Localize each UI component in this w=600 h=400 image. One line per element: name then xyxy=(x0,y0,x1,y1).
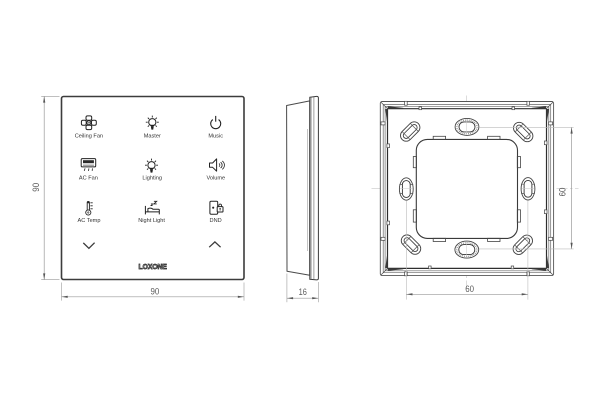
svg-text:AC Fan: AC Fan xyxy=(79,175,98,181)
svg-text:16: 16 xyxy=(299,287,307,297)
svg-text:60: 60 xyxy=(465,284,474,294)
svg-text:LOXONE: LOXONE xyxy=(139,262,168,271)
svg-text:Volume: Volume xyxy=(206,175,225,181)
svg-text:90: 90 xyxy=(151,286,160,296)
svg-text:DND: DND xyxy=(210,218,222,224)
svg-text:90: 90 xyxy=(31,183,41,192)
svg-text:60: 60 xyxy=(558,188,568,197)
svg-text:AC Temp: AC Temp xyxy=(78,218,101,224)
svg-text:Lighting: Lighting xyxy=(142,175,162,181)
svg-text:Music: Music xyxy=(208,134,223,140)
svg-text:Master: Master xyxy=(144,134,161,140)
svg-text:Night Light: Night Light xyxy=(138,218,165,224)
svg-text:Ceiling Fan: Ceiling Fan xyxy=(75,134,103,140)
